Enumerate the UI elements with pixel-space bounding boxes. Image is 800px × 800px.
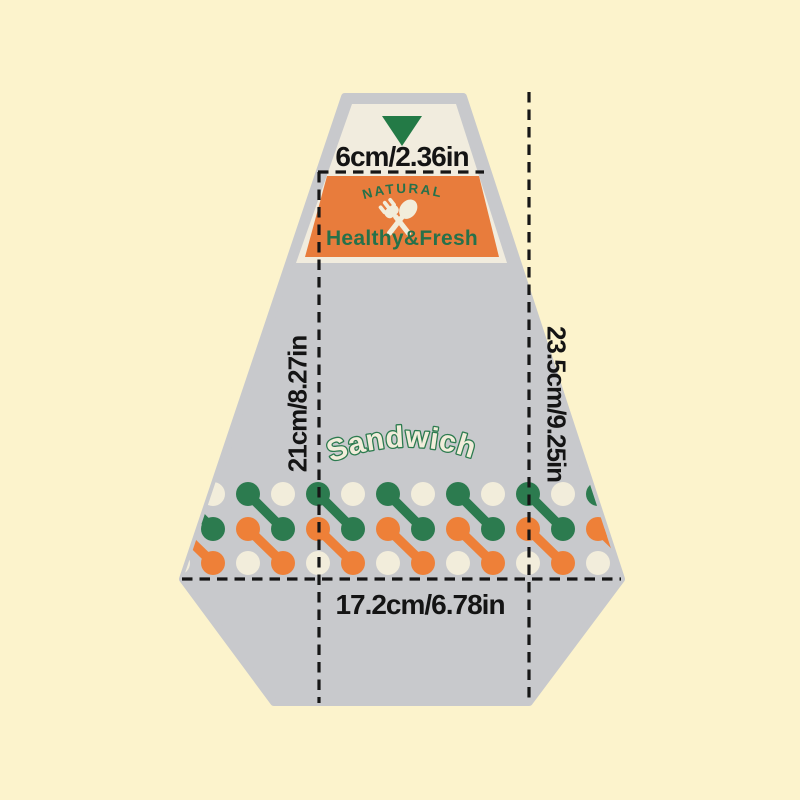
product-dimension-diagram: NATURAL Healthy&Fresh Sandwich (0, 0, 800, 800)
dim-label-bottom-width: 17.2cm/6.78in (335, 589, 504, 621)
dim-label-top-width: 6cm/2.36in (335, 141, 468, 173)
dim-label-body-height: 21cm/8.27in (283, 336, 314, 472)
dim-label-total-height: 23.5cm/9.25in (541, 326, 572, 482)
brand-name: Healthy&Fresh (326, 227, 478, 250)
packaging-illustration: NATURAL Healthy&Fresh Sandwich (0, 0, 800, 800)
